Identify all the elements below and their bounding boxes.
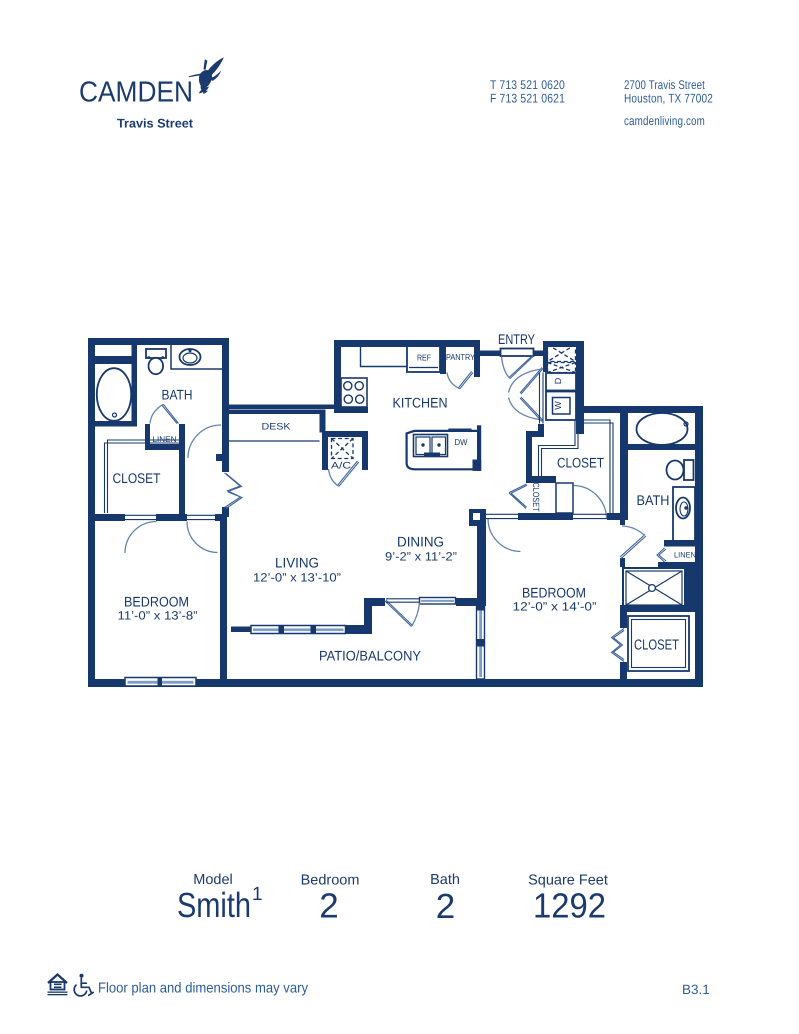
svg-text:ENTRY: ENTRY bbox=[498, 331, 536, 347]
svg-text:DESK: DESK bbox=[262, 422, 292, 433]
svg-text:CLOSET: CLOSET bbox=[634, 638, 679, 654]
svg-text:LINEN: LINEN bbox=[153, 435, 177, 444]
svg-text:camdenliving.com: camdenliving.com bbox=[624, 114, 705, 128]
svg-text:W: W bbox=[553, 401, 563, 410]
svg-text:LINEN: LINEN bbox=[674, 551, 696, 560]
svg-text:12’-0” x 13’-10”: 12’-0” x 13’-10” bbox=[253, 571, 341, 585]
svg-text:2: 2 bbox=[436, 887, 455, 926]
svg-text:BATH: BATH bbox=[162, 387, 193, 403]
svg-text:Travis Street: Travis Street bbox=[117, 117, 194, 131]
svg-text:LIVING: LIVING bbox=[275, 555, 319, 571]
svg-text:BATH: BATH bbox=[637, 492, 670, 508]
svg-text:B3.1: B3.1 bbox=[682, 982, 710, 997]
svg-text:Smith: Smith bbox=[177, 886, 251, 925]
svg-text:Bath: Bath bbox=[430, 872, 460, 888]
svg-text:REF: REF bbox=[417, 353, 431, 363]
svg-text:DINING: DINING bbox=[397, 534, 444, 550]
svg-text:2: 2 bbox=[319, 887, 338, 926]
svg-text:BEDROOM: BEDROOM bbox=[522, 585, 586, 601]
svg-text:A/C: A/C bbox=[331, 461, 351, 472]
svg-text:9’-2” x 11’-2”: 9’-2” x 11’-2” bbox=[385, 550, 457, 564]
svg-text:Houston, TX 77002: Houston, TX 77002 bbox=[624, 92, 713, 106]
svg-text:11’-0” x 13’-8”: 11’-0” x 13’-8” bbox=[118, 609, 198, 623]
svg-text:BEDROOM: BEDROOM bbox=[124, 594, 189, 610]
svg-text:1292: 1292 bbox=[533, 887, 606, 926]
svg-text:1: 1 bbox=[252, 884, 263, 905]
svg-text:12’-0” x 14’-0”: 12’-0” x 14’-0” bbox=[513, 600, 597, 614]
svg-text:PANTRY: PANTRY bbox=[446, 352, 475, 362]
svg-text:D: D bbox=[553, 377, 563, 384]
svg-text:Floor plan and dimensions may: Floor plan and dimensions may vary bbox=[98, 981, 309, 997]
svg-text:2700 Travis Street: 2700 Travis Street bbox=[624, 78, 705, 92]
svg-text:CLOSET: CLOSET bbox=[531, 483, 541, 512]
svg-text:CAMDEN: CAMDEN bbox=[79, 77, 193, 109]
svg-text:T 713 521 0620: T 713 521 0620 bbox=[490, 78, 565, 92]
svg-text:PATIO/BALCONY: PATIO/BALCONY bbox=[319, 648, 422, 664]
svg-text:KITCHEN: KITCHEN bbox=[393, 395, 448, 411]
svg-text:F 713 521 0621: F 713 521 0621 bbox=[490, 92, 565, 106]
svg-text:CLOSET: CLOSET bbox=[113, 470, 161, 486]
svg-text:DW: DW bbox=[455, 437, 468, 447]
svg-text:CLOSET: CLOSET bbox=[557, 455, 604, 471]
